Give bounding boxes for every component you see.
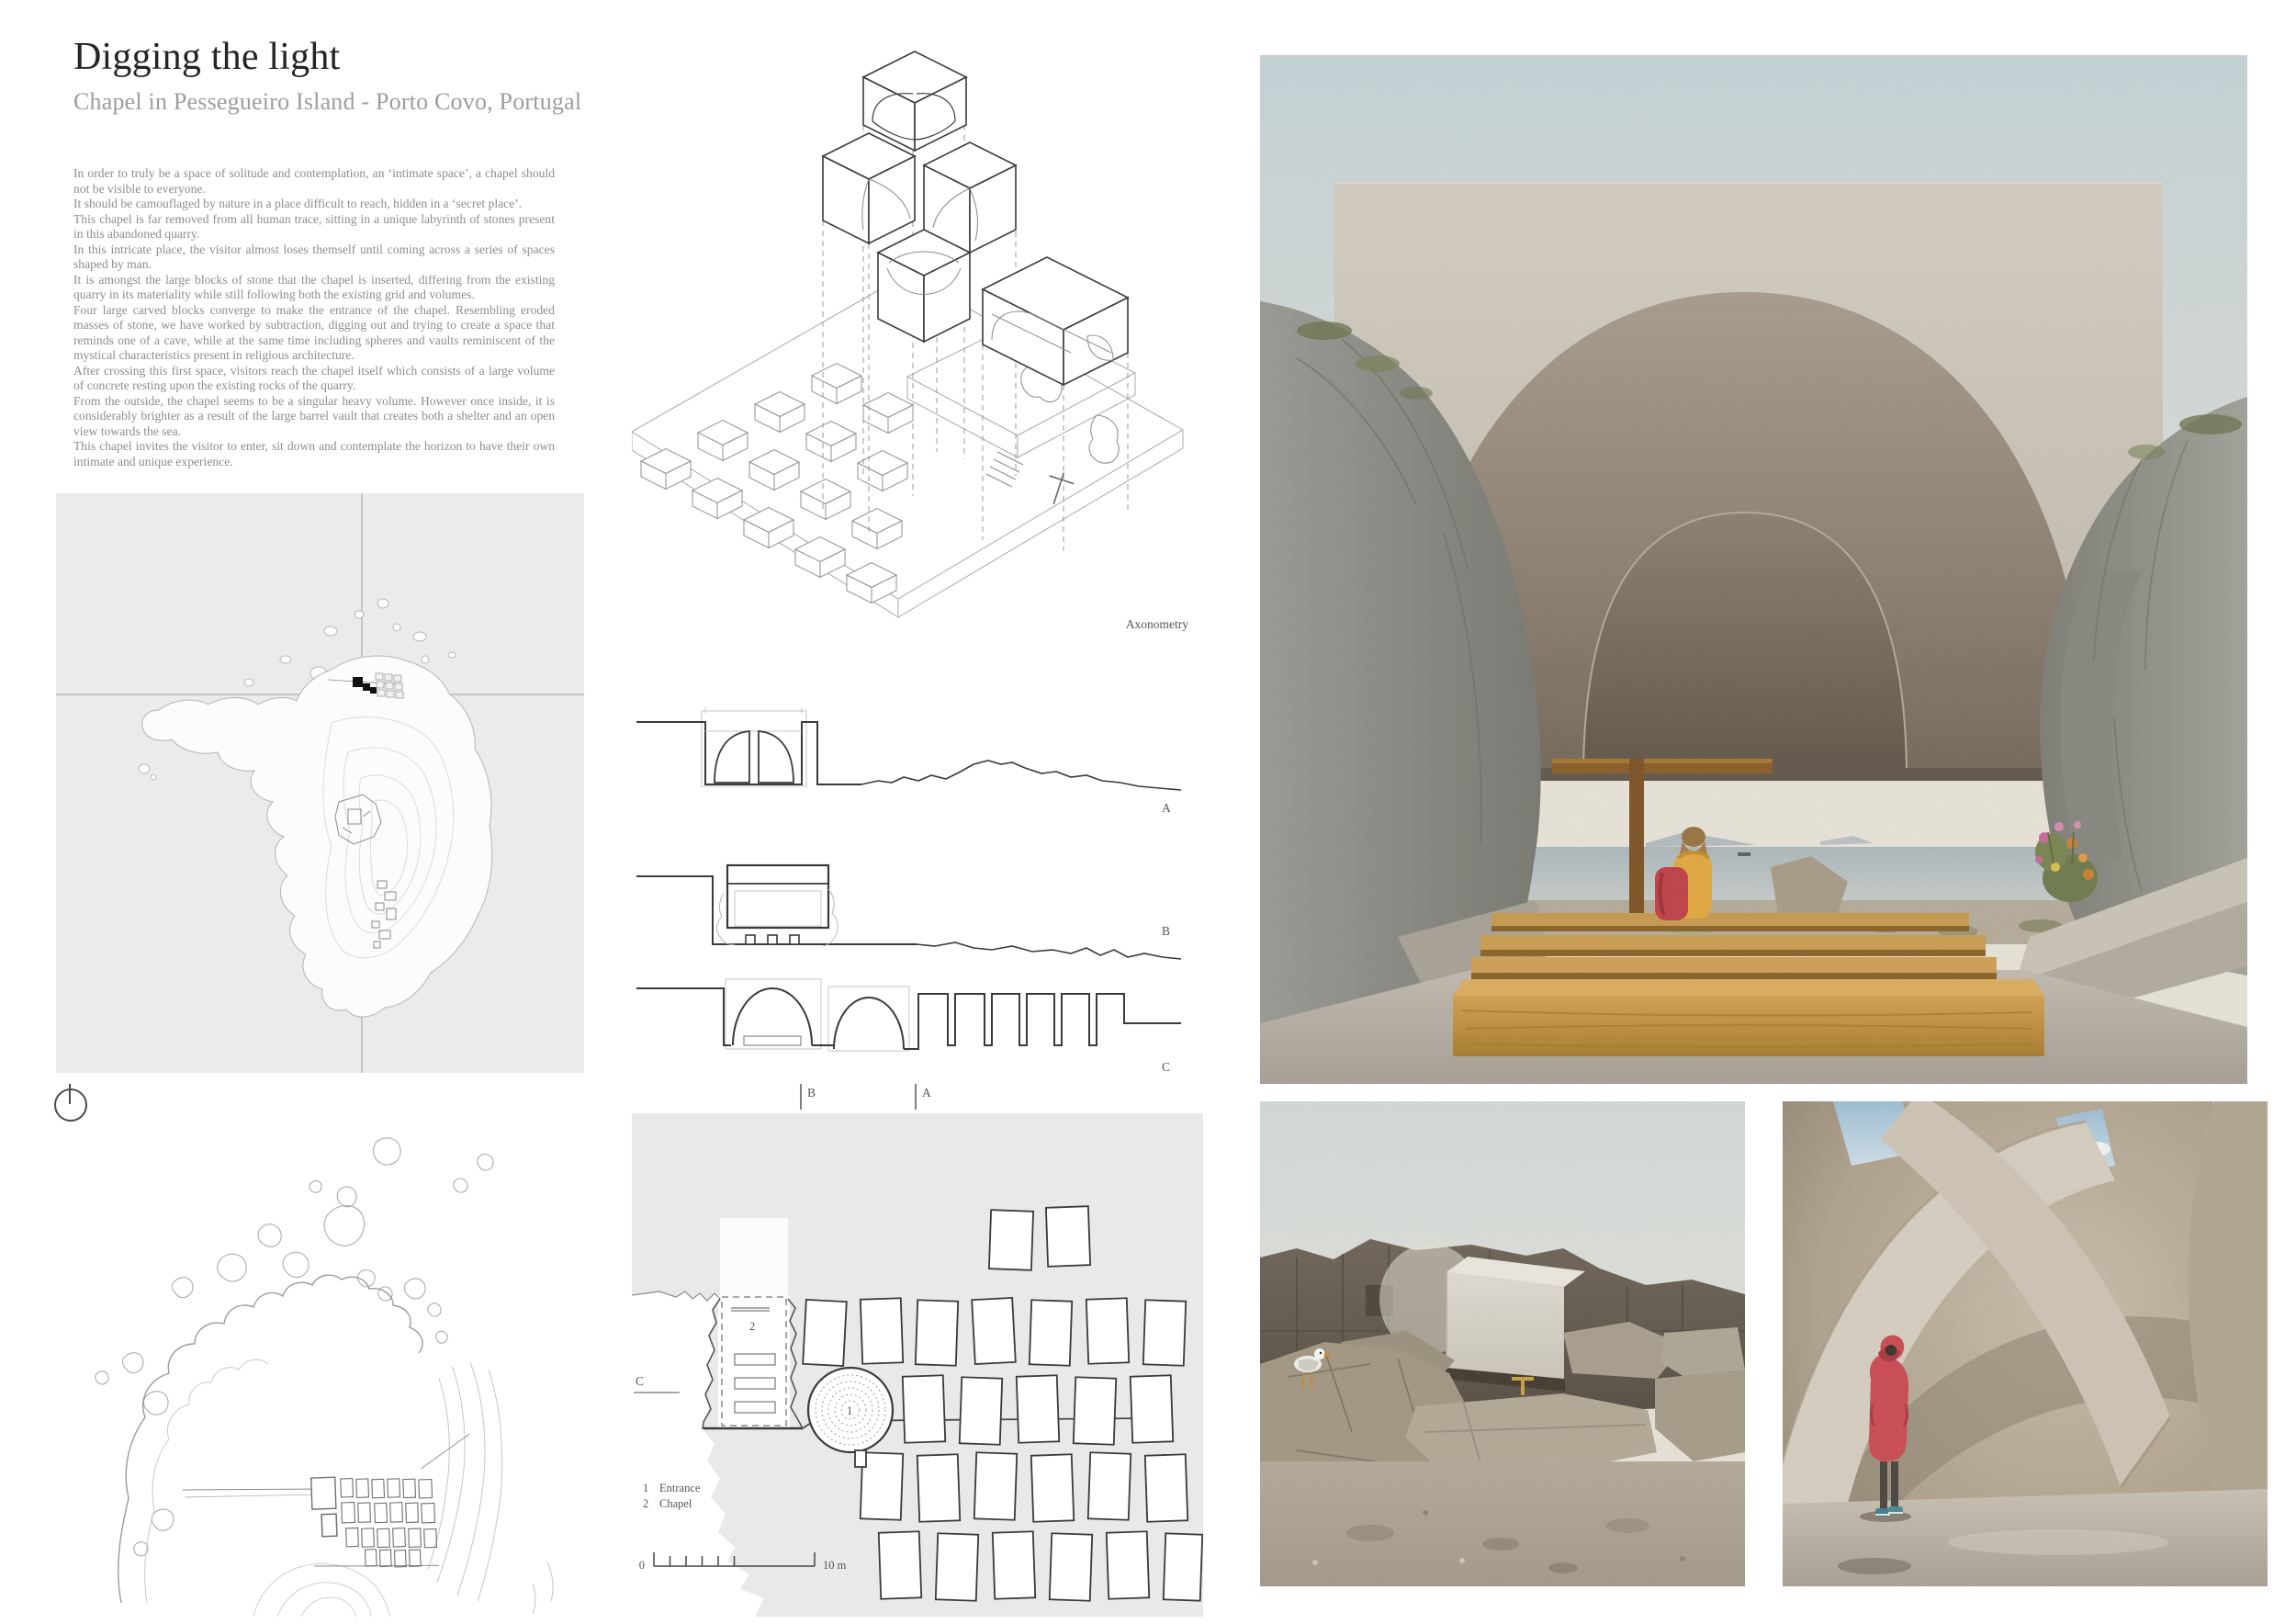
axonometry-caption: Axonometry bbox=[1126, 617, 1188, 631]
north-arrow-icon bbox=[52, 1087, 89, 1123]
island-outline bbox=[142, 656, 492, 1017]
grain-overlay bbox=[1783, 1101, 2268, 1586]
north-arrow-ring bbox=[54, 1088, 87, 1122]
plan-cut-label-b: B bbox=[807, 1086, 816, 1100]
section-b: B bbox=[636, 865, 1181, 959]
main-render-chapel-view bbox=[1260, 55, 2247, 1084]
floor-plan-drawing: B A 2 bbox=[632, 1082, 1203, 1617]
axo-volume-top bbox=[863, 51, 966, 151]
description-paragraph: After crossing this first space, visitor… bbox=[73, 364, 555, 394]
quarry-blocks bbox=[181, 1434, 474, 1574]
east-slope-contours bbox=[428, 1362, 553, 1614]
description-paragraph: From the outside, the chapel seems to be… bbox=[73, 394, 555, 440]
grain-overlay bbox=[1260, 1101, 1745, 1586]
coast-blobs bbox=[96, 1138, 493, 1556]
mound-contours bbox=[253, 1563, 389, 1617]
island-map-drawing bbox=[56, 493, 584, 1073]
axo-block-grid bbox=[641, 364, 913, 603]
description-paragraph: In order to truly be a space of solitude… bbox=[73, 166, 555, 197]
coastline bbox=[118, 1275, 422, 1603]
section-c-label: C bbox=[1162, 1060, 1170, 1074]
scale-end-label: 10 m bbox=[823, 1559, 847, 1572]
plan-chapel-zone bbox=[718, 1295, 790, 1429]
axo-volume-sphere bbox=[878, 230, 970, 342]
plan-chapel-halo bbox=[720, 1218, 788, 1301]
legend-entrance-label: Entrance bbox=[659, 1482, 701, 1494]
description-paragraph: It should be camouflaged by nature in a … bbox=[73, 197, 555, 212]
section-c: C bbox=[636, 979, 1181, 1074]
section-a: A bbox=[636, 707, 1181, 815]
grain-overlay bbox=[1260, 55, 2247, 1084]
axo-volume-left bbox=[823, 133, 915, 243]
description-paragraph: In this intricate place, the visitor alm… bbox=[73, 242, 555, 273]
section-a-terrain bbox=[861, 761, 1181, 790]
description-paragraph: Four large carved blocks converge to mak… bbox=[73, 303, 555, 364]
island-location-map bbox=[56, 493, 584, 1073]
presentation-board: Digging the light Chapel in Pessegueiro … bbox=[0, 0, 2296, 1624]
page-subtitle: Chapel in Pessegueiro Island - Porto Cov… bbox=[73, 88, 581, 116]
legend-chapel-label: Chapel bbox=[659, 1497, 692, 1510]
site-plan-drawing bbox=[37, 1125, 588, 1617]
legend-entrance-num: 1 bbox=[643, 1482, 648, 1494]
plan-cut-label-a: A bbox=[922, 1086, 931, 1100]
scale-start-label: 0 bbox=[639, 1559, 645, 1572]
exterior-render-quarry-view bbox=[1260, 1101, 1745, 1586]
section-c-quarry-teeth bbox=[904, 994, 1181, 1049]
interior-render-vault-view bbox=[1783, 1101, 2268, 1586]
quarry-blocks-mini bbox=[376, 673, 403, 698]
description-paragraph: It is amongst the large blocks of stone … bbox=[73, 273, 555, 303]
north-arrow-needle bbox=[69, 1084, 72, 1104]
section-b-label: B bbox=[1162, 924, 1170, 938]
section-b-terrain bbox=[917, 942, 1181, 959]
axo-volume-chapel bbox=[983, 257, 1128, 385]
description-paragraph: This chapel is far removed from all huma… bbox=[73, 212, 555, 242]
section-a-label: A bbox=[1162, 801, 1171, 815]
legend-chapel-num: 2 bbox=[643, 1497, 648, 1510]
sections-drawing: A B C bbox=[632, 707, 1194, 1075]
plan-marker-entrance: 1 bbox=[847, 1404, 852, 1417]
project-description: In order to truly be a space of solitude… bbox=[73, 166, 555, 469]
page-title: Digging the light bbox=[73, 35, 340, 79]
plan-cut-label-c: C bbox=[636, 1374, 644, 1388]
plan-marker-chapel: 2 bbox=[749, 1320, 755, 1333]
inner-contour bbox=[145, 1359, 268, 1603]
axonometry-drawing: Axonometry bbox=[632, 37, 1192, 643]
description-paragraph: This chapel invites the visitor to enter… bbox=[73, 439, 555, 469]
